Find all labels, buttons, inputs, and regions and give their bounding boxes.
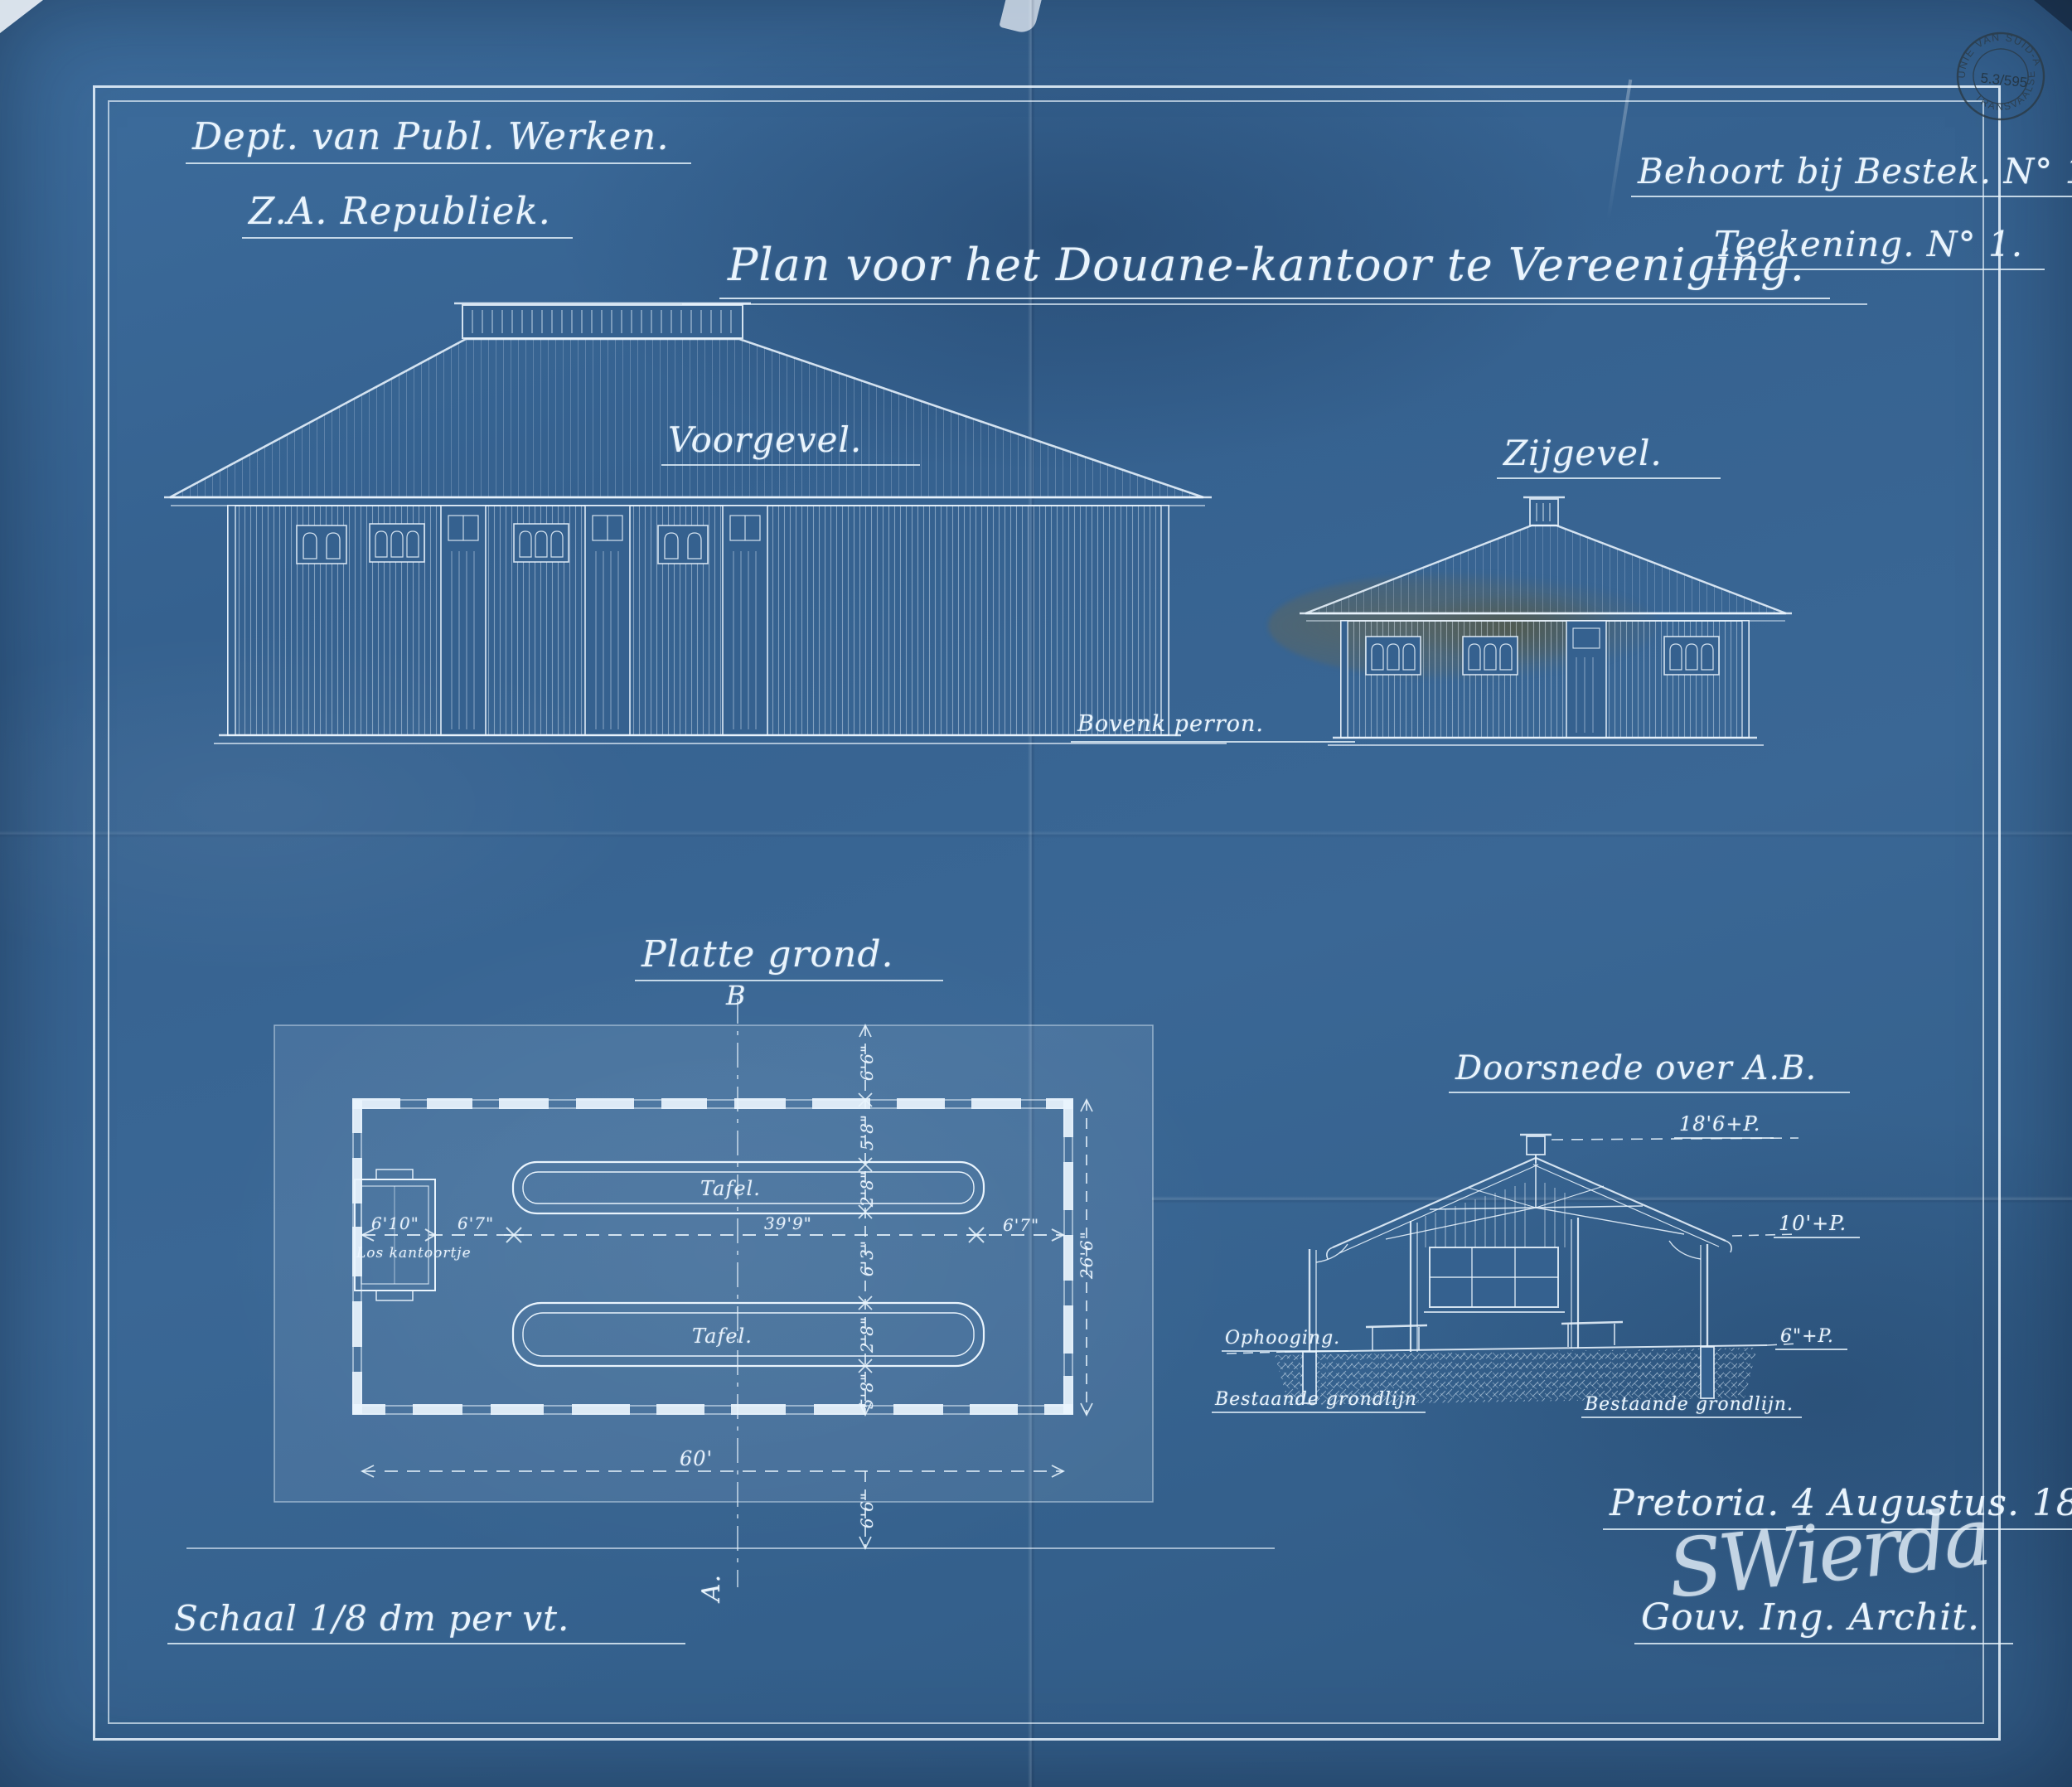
level-eaves: 10'+P. [1774, 1212, 1860, 1238]
level-plinth: 6"+P. [1775, 1326, 1847, 1350]
section-label: Doorsnede over A.B. [1449, 1049, 1850, 1087]
department-line2: Z.A. Republiek. [242, 189, 573, 239]
dim-length-mid: 39'9" [764, 1213, 812, 1233]
dim-gap-left: 6'7" [457, 1213, 494, 1233]
ground-line-right: Bestaande grondlijn. [1581, 1394, 1802, 1418]
section-drawing [1260, 1123, 1798, 1421]
dim-office-width: 6'10" [371, 1213, 419, 1233]
table-label-bottom: Tafel. [692, 1325, 753, 1348]
section-marker-bottom: A. [697, 1574, 726, 1601]
dim-stoep-bottom: 6'6" [857, 1492, 877, 1528]
signatory-role-text: Gouv. Ing. Archit. [1634, 1596, 2013, 1644]
level-ridge: 18'6+P. [1674, 1112, 1774, 1139]
side-elevation-label-text: Zijgevel. [1497, 433, 1721, 479]
scale-note: Schaal 1/8 dm per vt. [167, 1598, 685, 1639]
dim-stoep-top: 6'6" [857, 1044, 877, 1081]
floor-plan-area: B A. Los kantoortje Tafel. Tafel. 6'10" … [274, 978, 1293, 1625]
table-label-top: Tafel. [700, 1177, 761, 1200]
blueprint-sheet: UNIE VAN SUID-AFRIKA TRANSVAALSE ARGIEF … [0, 0, 2072, 1787]
ground-line-left: Bestaande grondlijn [1212, 1389, 1426, 1413]
department-header: Dept. van Publ. Werken. [186, 114, 691, 158]
page-title: Plan voor het Douane-kantoor te Vereenig… [719, 239, 1830, 291]
fold-crease-horizontal-upper [0, 831, 2072, 838]
section-marker-top: B [726, 980, 747, 1011]
dim-table-bottom-depth: 2'8" [857, 1316, 877, 1353]
dim-back-depth: 5'8" [857, 1373, 877, 1409]
department-line1: Dept. van Publ. Werken. [186, 114, 691, 164]
dim-table-top-depth: 2'8" [857, 1170, 877, 1207]
signatory-role: Gouv. Ing. Archit. [1634, 1596, 2013, 1639]
department-header-2: Z.A. Republiek. [242, 189, 573, 233]
side-elevation-drawing [1293, 487, 1798, 754]
reference-header: Behoort bij Bestek. N° 132. [1631, 151, 2072, 191]
dim-gap-right: 6'7" [1003, 1215, 1039, 1235]
paper-corner-tear [0, 0, 43, 33]
dim-front-depth: 5'8" [857, 1114, 877, 1150]
dim-total-width: 26'6" [1077, 1231, 1097, 1279]
reference-line1: Behoort bij Bestek. N° 132. [1631, 151, 2072, 197]
room-label: Los kantoortje [356, 1245, 472, 1262]
floor-plan-drawing [274, 978, 1293, 1625]
floor-plan-label-text: Platte grond. [635, 933, 943, 981]
stamp-arc-bottom-text: TRANSVAALSE ARGIEF [1920, 1, 2047, 130]
page-title-text: Plan voor het Douane-kantoor te Vereenig… [719, 239, 1830, 299]
front-elevation-drawing [149, 292, 1227, 756]
dim-total-length: 60' [680, 1447, 713, 1470]
stamp-number: 5.3/595 [1980, 70, 2028, 91]
section-label-text: Doorsnede over A.B. [1449, 1049, 1850, 1093]
scale-note-text: Schaal 1/8 dm per vt. [167, 1598, 685, 1644]
floor-plan-label: Platte grond. [635, 933, 943, 976]
dim-between-tables: 6'3" [857, 1240, 877, 1276]
side-elevation-label: Zijgevel. [1497, 433, 1721, 473]
svg-text:TRANSVAALSE ARGIEF: TRANSVAALSE ARGIEF [1920, 1, 2047, 130]
fill-label: Ophooging. [1222, 1328, 1348, 1352]
crease-diagonal [1607, 80, 1633, 220]
